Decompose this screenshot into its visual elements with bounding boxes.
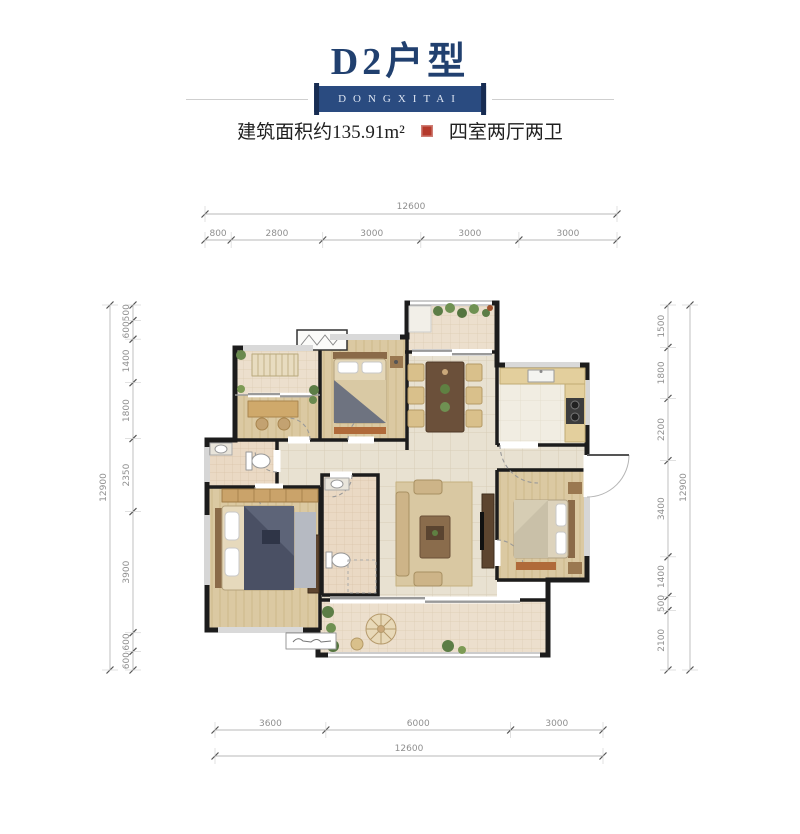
svg-text:3000: 3000: [458, 229, 481, 239]
svg-text:12900: 12900: [99, 473, 109, 502]
svg-text:6000: 6000: [407, 719, 430, 729]
meta-row: 建筑面积约135.91m² 四室两厅两卫: [0, 117, 800, 144]
svg-text:2100: 2100: [657, 629, 667, 652]
svg-text:2800: 2800: [265, 229, 288, 239]
svg-text:600: 600: [122, 633, 132, 650]
banner-text: DONGXITAI: [338, 93, 462, 105]
svg-text:3000: 3000: [545, 719, 568, 729]
room-master-bath: [322, 475, 378, 595]
left-rule: [186, 99, 308, 100]
dining-balcony-slider: [412, 349, 492, 356]
svg-text:1800: 1800: [657, 361, 667, 384]
plant: [237, 385, 245, 393]
svg-text:800: 800: [209, 229, 226, 239]
svg-text:500: 500: [657, 595, 667, 612]
svg-text:1400: 1400: [657, 565, 667, 588]
kitchen-window: [505, 362, 580, 368]
area-text: 建筑面积约135.91m²: [237, 117, 405, 144]
svg-text:2200: 2200: [657, 418, 667, 441]
svg-text:12600: 12600: [397, 202, 426, 212]
balcony-bench: [252, 354, 298, 376]
svg-text:3000: 3000: [360, 229, 383, 239]
plant: [458, 646, 466, 654]
right-rule: [492, 99, 614, 100]
unit-title: D2户型: [0, 30, 800, 85]
seal-icon: [421, 125, 433, 137]
dining-table: [408, 362, 482, 432]
south-balcony-rail: [328, 652, 540, 658]
plant: [236, 350, 246, 360]
svg-text:500: 500: [122, 304, 132, 321]
plant: [309, 385, 319, 395]
svg-text:3900: 3900: [122, 560, 132, 583]
bedroom3-window: [584, 488, 590, 556]
plant: [442, 640, 454, 652]
svg-text:1800: 1800: [122, 399, 132, 422]
project-banner: DONGXITAI: [314, 86, 486, 112]
study-balcony-rail: [243, 345, 313, 351]
bath1-window: [204, 447, 210, 482]
plant: [309, 396, 317, 404]
floorplan-page: D2户型 DONGXITAI 建筑面积约135.91m² 四室两厅两卫: [0, 0, 800, 834]
svg-text:3600: 3600: [259, 719, 282, 729]
master-south-window: [218, 627, 303, 633]
svg-text:600: 600: [122, 321, 132, 338]
plant: [322, 606, 334, 618]
plant: [326, 623, 336, 633]
svg-text:1400: 1400: [122, 349, 132, 372]
svg-text:3400: 3400: [657, 497, 667, 520]
svg-text:2350: 2350: [122, 463, 132, 486]
svg-text:1500: 1500: [657, 314, 667, 337]
master-west-window: [204, 515, 210, 585]
svg-text:12900: 12900: [679, 473, 689, 502]
svg-text:12600: 12600: [395, 744, 424, 754]
banner-row: DONGXITAI: [0, 86, 800, 112]
study-slider: [248, 393, 312, 398]
entry-door: [584, 455, 630, 497]
rooms-text: 四室两厅两卫: [449, 117, 563, 144]
svg-text:600: 600: [122, 652, 132, 669]
bedroom2-window: [330, 334, 400, 340]
balcony-slider: [330, 597, 520, 604]
window-tag: [286, 633, 336, 649]
svg-text:3000: 3000: [556, 229, 579, 239]
